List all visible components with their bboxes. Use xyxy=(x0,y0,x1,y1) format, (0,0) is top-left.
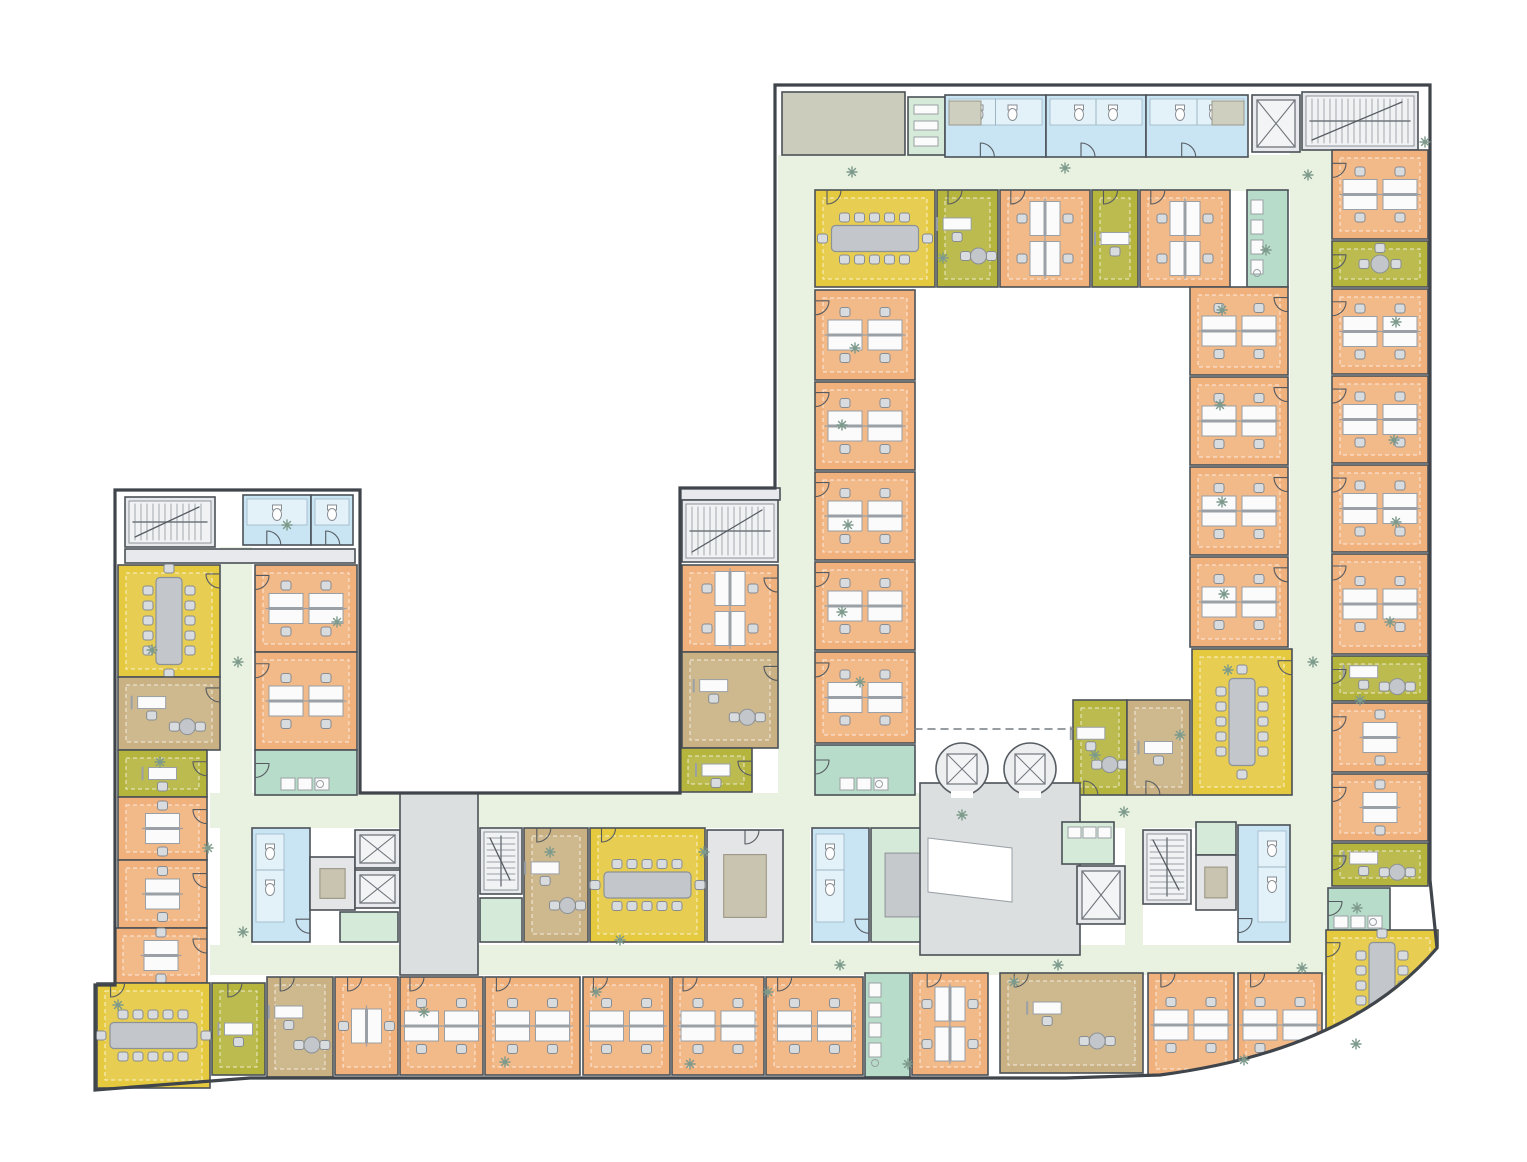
room-wc xyxy=(1238,825,1290,942)
room-pantry xyxy=(815,745,915,795)
room-office xyxy=(1190,557,1288,647)
room-office xyxy=(1332,376,1428,463)
room-meeting xyxy=(1192,649,1292,795)
room-office xyxy=(1148,973,1234,1077)
room-office xyxy=(1332,774,1428,841)
room-tan xyxy=(267,977,333,1077)
room-core xyxy=(125,497,215,547)
room-tan xyxy=(1000,973,1143,1073)
room-tan xyxy=(118,677,220,750)
room-olive xyxy=(680,748,752,792)
room-core xyxy=(355,830,400,868)
room-office xyxy=(815,472,915,560)
room-olive xyxy=(1332,656,1428,701)
room-core xyxy=(1252,95,1300,152)
room-office xyxy=(335,977,398,1075)
room-wc xyxy=(252,828,310,942)
room-olive xyxy=(1071,700,1128,795)
room-terrace xyxy=(782,92,905,155)
room-office xyxy=(118,860,207,928)
room-meeting xyxy=(96,983,211,1088)
room-storage xyxy=(707,830,783,942)
room-office xyxy=(115,928,207,983)
room-pantry xyxy=(1247,190,1288,287)
room-office xyxy=(1332,703,1428,772)
room-office xyxy=(255,652,357,750)
lobby-void xyxy=(928,838,1012,902)
room-office xyxy=(672,977,764,1075)
floor-plan xyxy=(0,0,1527,1162)
room-core xyxy=(1143,830,1191,904)
room-office xyxy=(1332,465,1428,552)
room-pantry xyxy=(865,973,910,1077)
room-tan xyxy=(524,828,588,942)
room-wc xyxy=(1046,95,1146,157)
room-mint xyxy=(1196,822,1236,855)
room-olive xyxy=(1332,843,1428,886)
room-office xyxy=(255,565,357,652)
room-meeting xyxy=(815,190,935,287)
room-olive xyxy=(1332,241,1428,287)
room-storage xyxy=(1196,855,1236,910)
room-wc xyxy=(1146,95,1248,157)
room-office xyxy=(1140,190,1230,287)
floor-plan-svg xyxy=(0,0,1527,1162)
room-tan xyxy=(682,652,778,748)
room-pantry xyxy=(255,750,357,795)
room-olive xyxy=(937,190,998,287)
room-tan xyxy=(1127,700,1190,795)
room-office xyxy=(1190,287,1288,375)
room-core xyxy=(125,549,355,563)
room-meeting xyxy=(590,828,705,942)
room-core xyxy=(1302,92,1418,150)
room-core xyxy=(682,500,778,562)
room-wc xyxy=(812,828,869,942)
room-office xyxy=(1332,289,1428,374)
room-storage xyxy=(310,857,355,910)
room-core xyxy=(1077,866,1125,924)
room-office xyxy=(118,797,207,860)
room-olive xyxy=(1092,190,1138,287)
room-office xyxy=(815,562,915,650)
room-office xyxy=(682,565,778,652)
room-wc xyxy=(311,495,353,545)
room-mint xyxy=(908,97,945,155)
room-core xyxy=(680,488,780,500)
room-meeting xyxy=(118,564,220,678)
room-office xyxy=(815,382,915,470)
room-core xyxy=(480,828,522,894)
room-mint xyxy=(1062,822,1114,864)
room-office xyxy=(400,977,483,1075)
room-office xyxy=(766,977,863,1075)
room-office xyxy=(1332,554,1428,654)
room-wc xyxy=(945,95,1046,157)
room-office xyxy=(1190,377,1288,465)
room-office xyxy=(815,652,915,743)
room-lobby xyxy=(400,793,478,975)
room-office xyxy=(485,977,580,1075)
room-olive xyxy=(118,750,207,797)
room-office xyxy=(1190,467,1288,555)
room-office xyxy=(912,973,988,1075)
room-office xyxy=(1000,190,1090,287)
room-mint xyxy=(480,898,522,942)
room-wc xyxy=(243,495,311,545)
room-office xyxy=(815,290,915,380)
room-mint xyxy=(340,912,398,942)
room-office xyxy=(1332,150,1428,239)
room-olive xyxy=(212,983,265,1075)
room-core xyxy=(355,870,400,908)
